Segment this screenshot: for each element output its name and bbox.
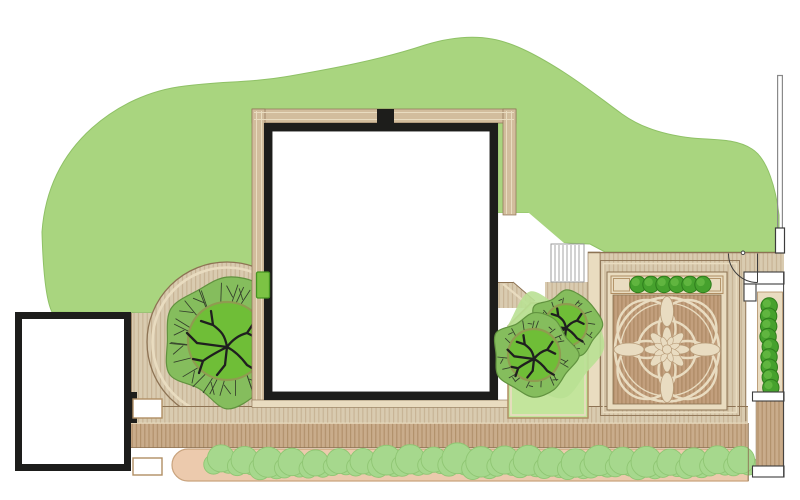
garden-plan: Garden landscape design plan (top view) <box>0 0 800 500</box>
garage-threshold-lower <box>133 458 162 475</box>
house-edging-bottom <box>252 400 514 408</box>
gate-wall-vertical <box>744 284 756 301</box>
house-walls <box>268 127 494 396</box>
planter-bushes <box>630 276 711 292</box>
house-edging-right <box>503 109 516 215</box>
stairs <box>551 244 584 282</box>
chimney <box>377 109 394 124</box>
parterre-ornament <box>614 297 720 403</box>
garage-walls <box>19 316 128 468</box>
gate-hinge <box>741 251 745 255</box>
side-wall-upper <box>753 392 785 401</box>
parterre-panel <box>607 272 727 410</box>
side-passage-deck <box>756 400 784 466</box>
house <box>252 109 516 408</box>
door-planter <box>257 272 270 298</box>
fence-post <box>776 228 785 253</box>
garage-threshold-upper <box>133 399 162 418</box>
gate-wall-horizontal <box>744 272 784 284</box>
stair-treads <box>555 245 579 281</box>
garden-plan-canvas: Garden landscape design plan (top view) <box>0 0 800 500</box>
house-edging-left <box>252 109 265 402</box>
side-hedge <box>760 298 779 396</box>
side-wall-lower <box>753 466 785 477</box>
